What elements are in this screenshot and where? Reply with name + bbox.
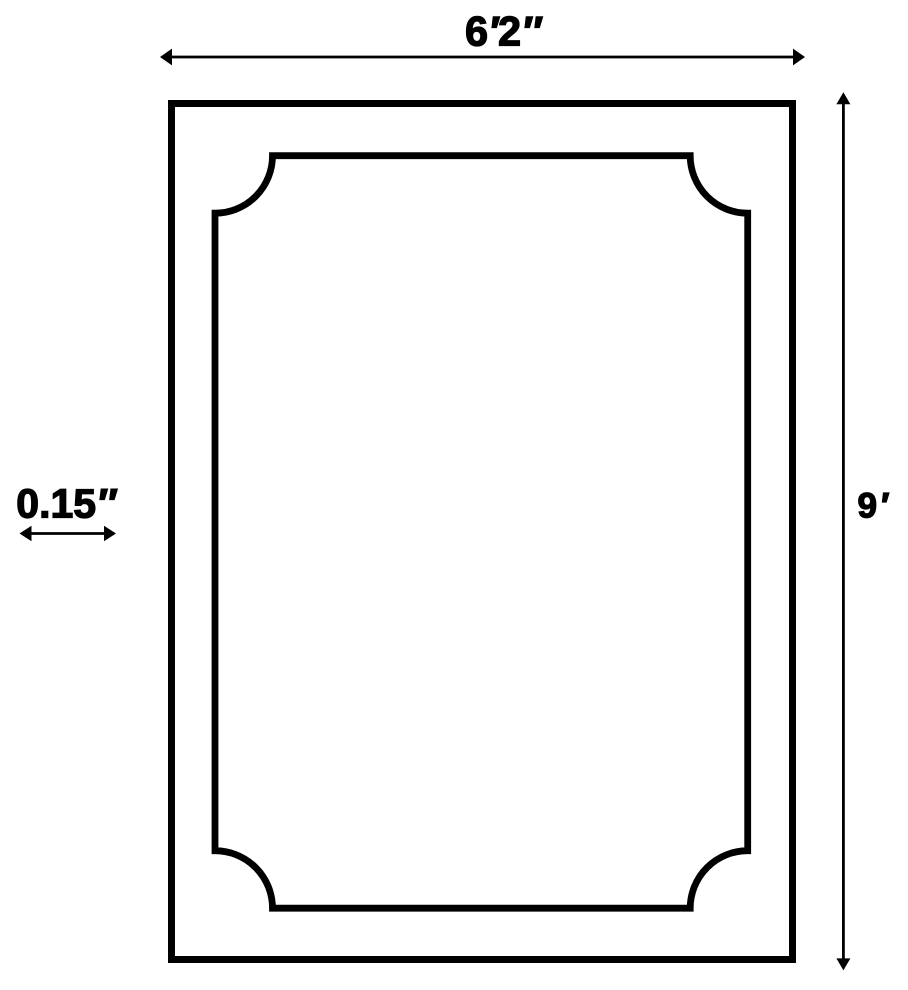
svg-text:0.15″: 0.15″ <box>16 480 118 526</box>
svg-text:9′: 9′ <box>858 486 890 525</box>
svg-text:6′2″: 6′2″ <box>465 8 543 55</box>
